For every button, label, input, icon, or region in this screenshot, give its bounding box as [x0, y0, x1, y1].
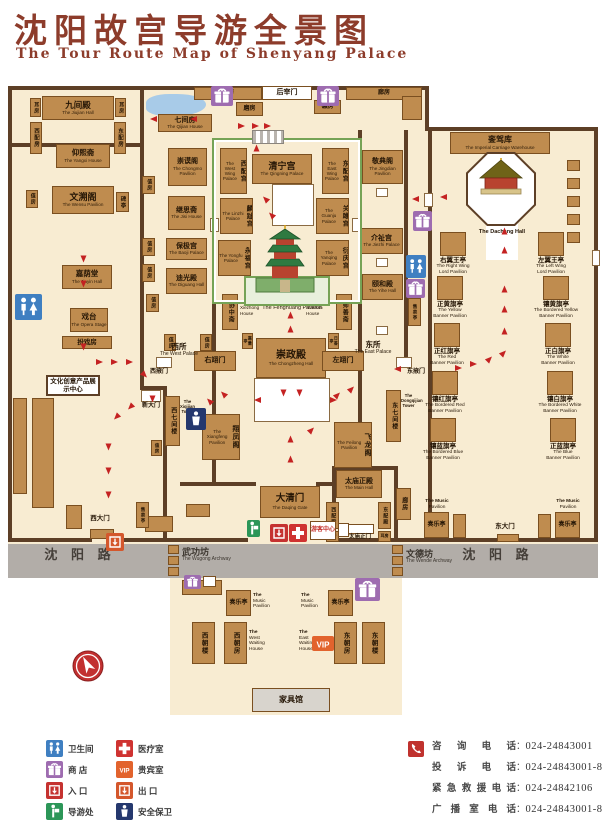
- route-arrow: [412, 196, 419, 202]
- exit-icon: [106, 533, 124, 551]
- map-building: 值房: [151, 440, 162, 456]
- music-pavilion-nw: 奏乐亭: [555, 512, 580, 538]
- map-building: [543, 276, 569, 300]
- contact-label: 广播室电话: [432, 801, 516, 815]
- wensu-pavilion: 文溯阁The Wensu Pavilion: [52, 186, 114, 214]
- gate-marker: [376, 258, 388, 267]
- music-pavilion-sw: 奏乐亭: [226, 590, 251, 616]
- jialiang-pavilion: 嘉量亭: [242, 333, 253, 349]
- route-arrow: [96, 359, 103, 365]
- dongye-gate-label: 东掖门: [400, 369, 432, 376]
- contact-separator: ：: [516, 738, 526, 752]
- legend-label: 入 口: [68, 785, 87, 797]
- map-building: [402, 96, 422, 120]
- xiqijian-tower: 西七间楼: [165, 396, 180, 446]
- west-gate-label: 西大门: [84, 515, 116, 522]
- houzai-gate: 后宰门: [262, 86, 312, 100]
- map-building: [437, 276, 463, 300]
- furniture-hall: 家具馆: [252, 688, 330, 712]
- map-building: 值房: [146, 294, 159, 312]
- chongmo-pavilion: 崇谟阁The Chongmo Pavilion: [168, 148, 207, 186]
- banxifang: 扮戏房: [62, 336, 112, 349]
- dazheng-hall-illustration: [472, 158, 530, 200]
- map-label: 镶蓝旗亭The Bordered BlueBanner Pavilion: [415, 443, 471, 462]
- map-label: 镶白旗亭The Bordered WhiteBanner Pavilion: [532, 396, 588, 415]
- contact-label: 紧急救援电话: [432, 780, 516, 794]
- legend-label: 贵宾室: [138, 764, 164, 776]
- route-arrow: [81, 344, 87, 351]
- east-peifang: 东配房: [114, 122, 126, 154]
- security-icon: [186, 408, 206, 430]
- map-building: 值房: [142, 176, 155, 194]
- contact-row: 投诉电话：024-24843001-8805: [432, 759, 602, 773]
- qijian-house: 七间房The Qijian House: [158, 114, 212, 132]
- map-label: TheMusicPavilion: [301, 593, 331, 610]
- route-arrow: [106, 444, 112, 451]
- map-building: [567, 214, 580, 225]
- taimiao-main-hall: 太庙正殿The Main Hall: [336, 470, 382, 498]
- legend-item-entrance: 入 口: [46, 782, 87, 799]
- route-arrow: [254, 397, 261, 403]
- map-label: The Dongqijian Tower: [401, 394, 416, 408]
- route-arrow: [502, 228, 508, 235]
- route-arrow: [288, 436, 294, 443]
- map-label: 右翼王亭The Right WingLord Pavilion: [425, 257, 481, 276]
- map-building: 东配殿: [378, 502, 391, 529]
- route-arrow: [394, 366, 401, 372]
- map-building: [567, 160, 580, 171]
- daqing-gate: 大清门The Daqing Gate: [260, 486, 320, 518]
- legend-item-vip: VIP贵宾室: [116, 761, 164, 778]
- contact-number: 024-24842106: [526, 783, 593, 794]
- legend-label: 安全保卫: [138, 806, 172, 818]
- yangxi-house: 仰熙斋The Yangxi House: [56, 144, 110, 168]
- map-building: [392, 556, 403, 565]
- map-building: [538, 514, 551, 538]
- opera-stage: 戏台The Opera Stage: [70, 308, 108, 332]
- map-canvas: 九间殿The Jiujian Hall耳房耳房西配房东配房仰熙斋The Yang…: [0, 0, 602, 822]
- xiangfeng-pavilion: 翔凤阁The Xiangfeng Pavilion: [202, 414, 240, 460]
- legend-label: 导游处: [68, 806, 94, 818]
- map-label: 正蓝旗亭The BlueBanner Pavilion: [535, 443, 591, 462]
- compass-icon: [72, 650, 104, 682]
- gate-marker: [376, 188, 388, 197]
- map-building: 耳房: [30, 98, 41, 117]
- route-arrow: [502, 306, 508, 313]
- map-label: 正白旗亭The WhiteBanner Pavilion: [530, 348, 586, 367]
- route-arrow: [190, 116, 197, 122]
- dongqijian-tower: 东七间楼: [386, 390, 401, 442]
- exit-icon: [116, 782, 133, 799]
- chongzheng-hall: 崇政殿The Chongzheng Hall: [256, 338, 326, 378]
- map-building: 值房: [200, 334, 212, 351]
- palace-wall: [8, 86, 12, 542]
- map-building: [434, 323, 460, 347]
- route-arrow: [111, 359, 118, 365]
- map-building: [567, 178, 580, 189]
- toilet-icon: [46, 740, 63, 757]
- east-chaolou: 东朝楼: [362, 622, 385, 664]
- route-arrow: [288, 326, 294, 333]
- map-label: 镶黄旗亭The Bordered YellowBanner Pavilion: [528, 301, 584, 320]
- wugong-archway-label: 武功坊The Wugong Archway: [182, 547, 256, 563]
- route-arrow: [106, 468, 112, 475]
- map-label: 正黄旗亭The YellowBanner Pavilion: [422, 301, 478, 320]
- security-icon: [116, 803, 133, 820]
- route-arrow: [288, 312, 294, 319]
- gift-icon: [46, 761, 63, 778]
- route-arrow: [288, 456, 294, 463]
- palace-wall: [8, 538, 92, 542]
- svg-text:VIP: VIP: [120, 768, 130, 775]
- east-waiting-house: 东朝房: [334, 622, 357, 664]
- palace-wall: [425, 127, 598, 131]
- map-building: [32, 398, 54, 508]
- jiayin-hall: 嘉荫堂The Jiayin Hall: [62, 265, 112, 289]
- palace-wall: [425, 86, 429, 131]
- medical-icon: [116, 740, 133, 757]
- map-label: 正红旗亭The RedBanner Pavilion: [419, 348, 475, 367]
- route-arrow: [502, 328, 508, 335]
- gift-icon: [317, 86, 339, 106]
- toilet-icon: [406, 255, 426, 278]
- jiujian-hall: 九间殿The Jiujian Hall: [42, 96, 114, 120]
- contact-number: 024-24843001-8805: [526, 762, 602, 773]
- map-building: [440, 232, 466, 256]
- palace-wall: [140, 86, 144, 388]
- shenyang-palace-map-poster: 沈阳故宫导游全景图 The Tour Route Map of Shenyang…: [0, 0, 602, 822]
- route-arrow: [502, 286, 508, 293]
- west-peifang: 西配房: [30, 122, 42, 154]
- jisi-house: 继思斋The Jisi House: [168, 196, 205, 230]
- cultural-center: 文化创意产品展示中心: [46, 375, 100, 396]
- contact-number: 024-24843001-8832: [526, 804, 602, 815]
- route-arrow: [81, 256, 87, 263]
- map-building: [547, 371, 573, 395]
- youyi-gate: 右翊门: [194, 351, 236, 371]
- chongzheng-platform: [254, 378, 330, 422]
- yihe-hall: 颐和殿The Yihe Hall: [362, 274, 403, 300]
- legend-item-exit: 出 口: [116, 782, 157, 799]
- map-building: [392, 567, 403, 576]
- map-building: 值房: [26, 190, 38, 208]
- diguang-hall: 迪光殿The Diguang Hall: [166, 268, 207, 294]
- route-arrow: [264, 123, 271, 129]
- map-building: [567, 232, 580, 243]
- music-pavilion-se: 奏乐亭: [328, 590, 353, 616]
- vip-icon: VIP: [312, 636, 334, 651]
- contact-separator: ：: [516, 780, 526, 794]
- route-arrow: [455, 365, 462, 371]
- palace-wall: [108, 538, 248, 542]
- northeast-white-area: [429, 86, 598, 127]
- music-pavilion-ne: 奏乐亭: [424, 512, 449, 538]
- map-building: [203, 576, 216, 587]
- legend-item-medical: 医疗室: [116, 740, 164, 757]
- east-gate-label: 东大门: [489, 523, 521, 530]
- gift-icon: [355, 578, 380, 601]
- route-arrow: [106, 492, 112, 499]
- visitor-center: 游客中心: [310, 521, 336, 540]
- toilet-icon: [15, 294, 42, 320]
- map-building: [186, 504, 210, 517]
- east-palace-label: 东所The East Palace: [352, 341, 394, 355]
- route-arrow: [297, 390, 303, 397]
- west-palace-label: 西所The West Palace: [158, 343, 200, 357]
- map-building: [66, 505, 82, 529]
- map-building: 耳房: [378, 531, 391, 542]
- legend-item-gift: 商 店: [46, 761, 87, 778]
- map-building: 廊房: [396, 488, 411, 520]
- feilong-pavilion: 飞龙阁The Feilong Pavilion: [334, 422, 372, 468]
- luanjia-warehouse: 銮驾库The Imperial Carriage Warehouse: [450, 132, 550, 154]
- map-building: [145, 516, 173, 532]
- contact-row: 咨询电话：024-24843001: [432, 738, 593, 752]
- guide-icon: [46, 803, 63, 820]
- map-building: [453, 514, 466, 538]
- shop-kiosk-east: 售卖亭: [408, 298, 421, 326]
- stele-pavilion: 碑亭: [116, 192, 129, 212]
- svg-text:VIP: VIP: [317, 641, 331, 650]
- map-building: [567, 196, 580, 207]
- contact-row: 广播室电话：024-24843001-8832: [432, 801, 602, 815]
- gate-marker: [376, 326, 388, 335]
- map-label: TheWestWaitingHouse: [249, 630, 279, 652]
- vip-icon: VIP: [116, 761, 133, 778]
- legend-item-guide: 导游处: [46, 803, 94, 820]
- map-building: [538, 232, 564, 256]
- map-building: 值房: [142, 238, 155, 256]
- west-chaolou: 西朝楼: [192, 622, 215, 664]
- legend-label: 卫生间: [68, 743, 94, 755]
- map-building: [432, 371, 458, 395]
- gift-icon: [413, 211, 432, 231]
- route-arrow: [470, 361, 477, 367]
- map-building: [545, 323, 571, 347]
- rigui-pavilion: 日晷亭: [328, 333, 339, 349]
- route-arrow: [252, 123, 259, 129]
- route-arrow: [502, 247, 508, 254]
- wende-archway-label: 文德坊The Wende Archway: [406, 549, 480, 565]
- route-arrow: [281, 390, 287, 397]
- map-label: TheMusicPavilion: [253, 593, 285, 610]
- legend-item-security: 安全保卫: [116, 803, 172, 820]
- map-building: [430, 418, 456, 442]
- gift-icon: [184, 575, 201, 589]
- contact-row: 紧急救援电话：024-24842106: [432, 780, 593, 794]
- map-building: 值房: [142, 264, 155, 282]
- contact-label: 投诉电话: [432, 759, 516, 773]
- map-label: 太庙正门: [342, 534, 378, 540]
- contact-separator: ：: [516, 801, 526, 815]
- medical-icon: [289, 524, 307, 542]
- gate-marker: [592, 250, 600, 266]
- map-building: [168, 556, 179, 565]
- route-arrow: [238, 123, 245, 129]
- map-label: The MusicPavilion: [418, 499, 456, 510]
- stairs-graphic: [252, 130, 284, 144]
- map-building: 耳房: [115, 98, 126, 117]
- map-building: [550, 418, 576, 442]
- entrance-icon: [270, 524, 288, 542]
- map-building: [168, 567, 179, 576]
- shop-kiosk-west: 售卖亭: [136, 502, 149, 528]
- legend-label: 医疗室: [138, 743, 164, 755]
- palace-wall: [428, 127, 432, 540]
- contact-separator: ：: [516, 759, 526, 773]
- map-building: [392, 545, 403, 554]
- map-label: 镶红旗亭The Bordered RedBanner Pavilion: [417, 396, 473, 415]
- gift-icon: [406, 279, 425, 298]
- entrance-icon: [46, 782, 63, 799]
- route-arrow: [81, 281, 87, 288]
- map-building: [13, 398, 27, 494]
- map-building: [168, 545, 179, 554]
- palace-wall: [180, 482, 256, 486]
- route-arrow: [150, 396, 156, 403]
- route-arrow: [126, 359, 133, 365]
- route-arrow: [440, 194, 447, 200]
- legend-item-toilet: 卫生间: [46, 740, 94, 757]
- phone-icon: [408, 741, 424, 757]
- gate-marker: [156, 357, 172, 368]
- new-gate-label: 新大门: [135, 403, 167, 410]
- map-label: The MusicPavilion: [549, 499, 587, 510]
- gift-icon: [211, 86, 233, 106]
- contact-label: 咨询电话: [432, 738, 516, 752]
- map-building: [497, 534, 519, 542]
- map-label: 左翼王亭The Left WingLord Pavilion: [523, 257, 579, 276]
- baoji-palace: 保极宫The Baoji Palace: [166, 238, 207, 260]
- contact-number: 024-24843001: [526, 741, 593, 752]
- west-waiting-house: 西朝房: [224, 622, 247, 664]
- mofang: 磨房: [236, 102, 263, 116]
- jiezhi-palace: 介祉宫The Jiezhi Palace: [360, 228, 403, 254]
- gate-marker: [424, 193, 433, 207]
- jingdian-pavilion: 敬典阁The Jingdian Pavilion: [362, 150, 403, 184]
- legend-label: 商 店: [68, 764, 87, 776]
- route-arrow: [150, 116, 157, 122]
- palace-wall: [594, 127, 598, 542]
- fenghuang-pavilion-illustration: [252, 224, 318, 294]
- guide-icon: [247, 520, 260, 537]
- legend-label: 出 口: [138, 785, 157, 797]
